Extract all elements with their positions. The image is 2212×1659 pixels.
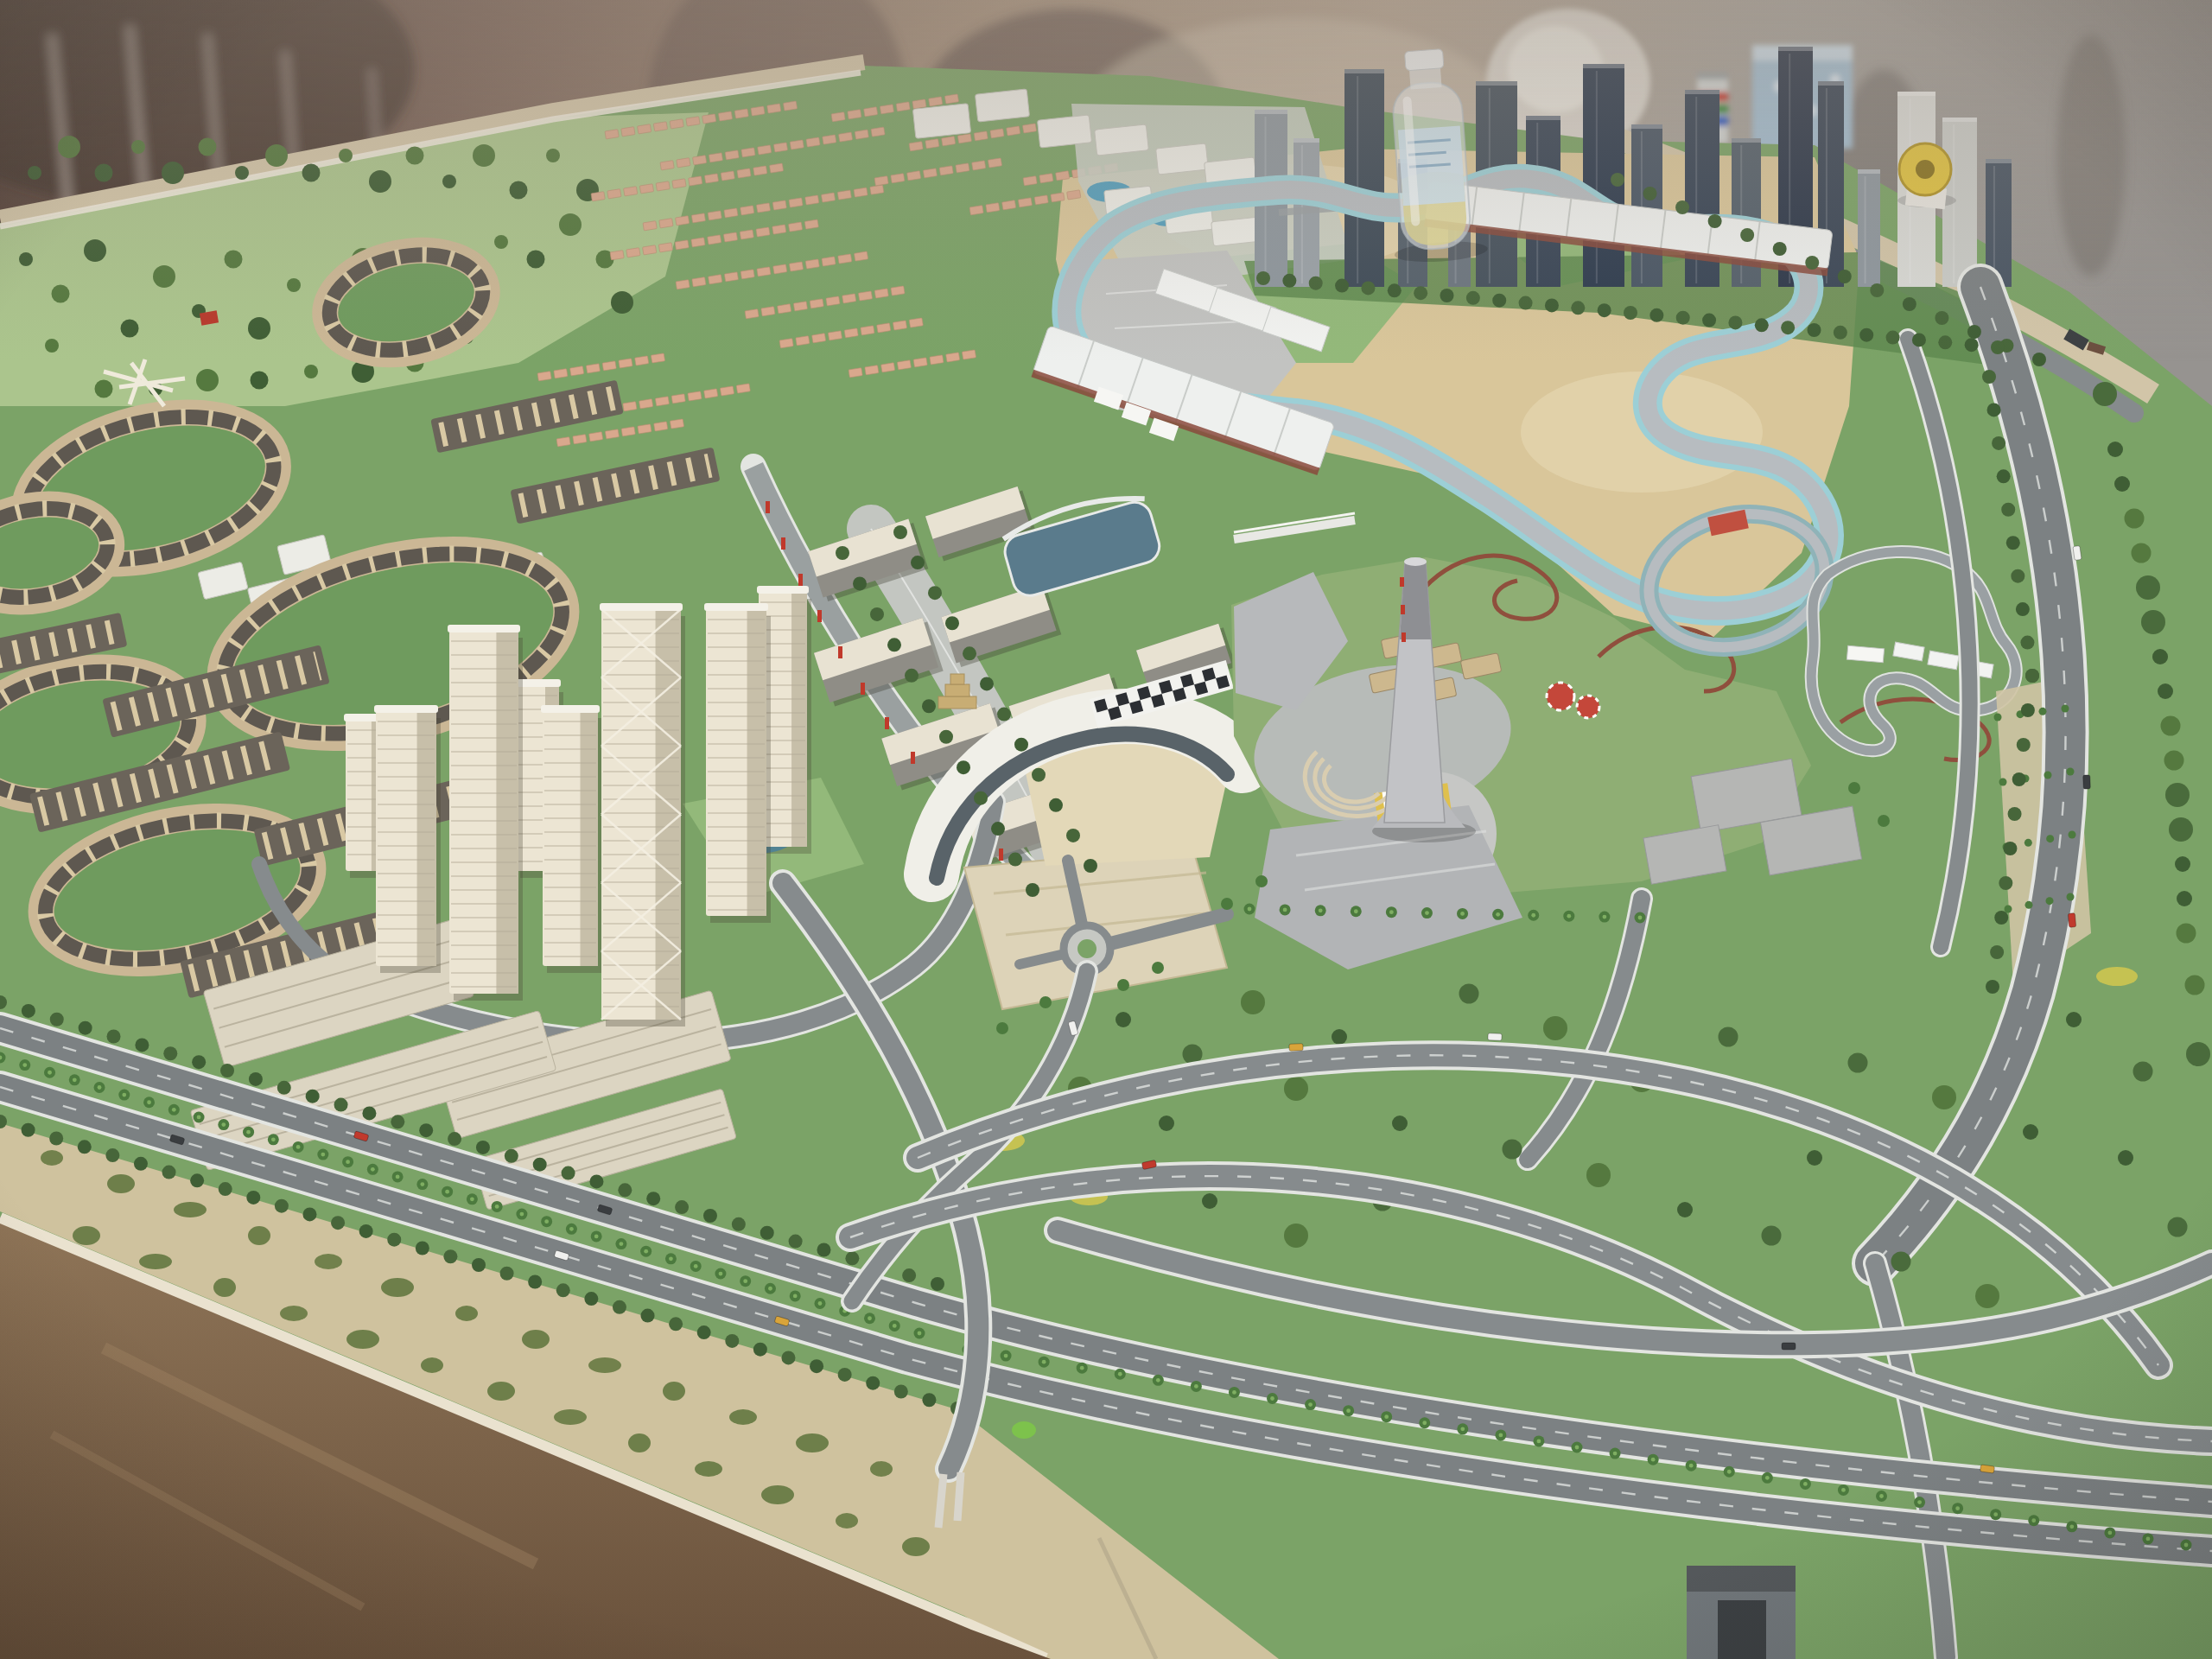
model-scene [0,0,2212,1659]
photo-effects [0,0,2212,1659]
photo-of-architectural-model: Photograph of a large architectural scal… [0,0,2212,1659]
vignette [0,0,2212,1659]
